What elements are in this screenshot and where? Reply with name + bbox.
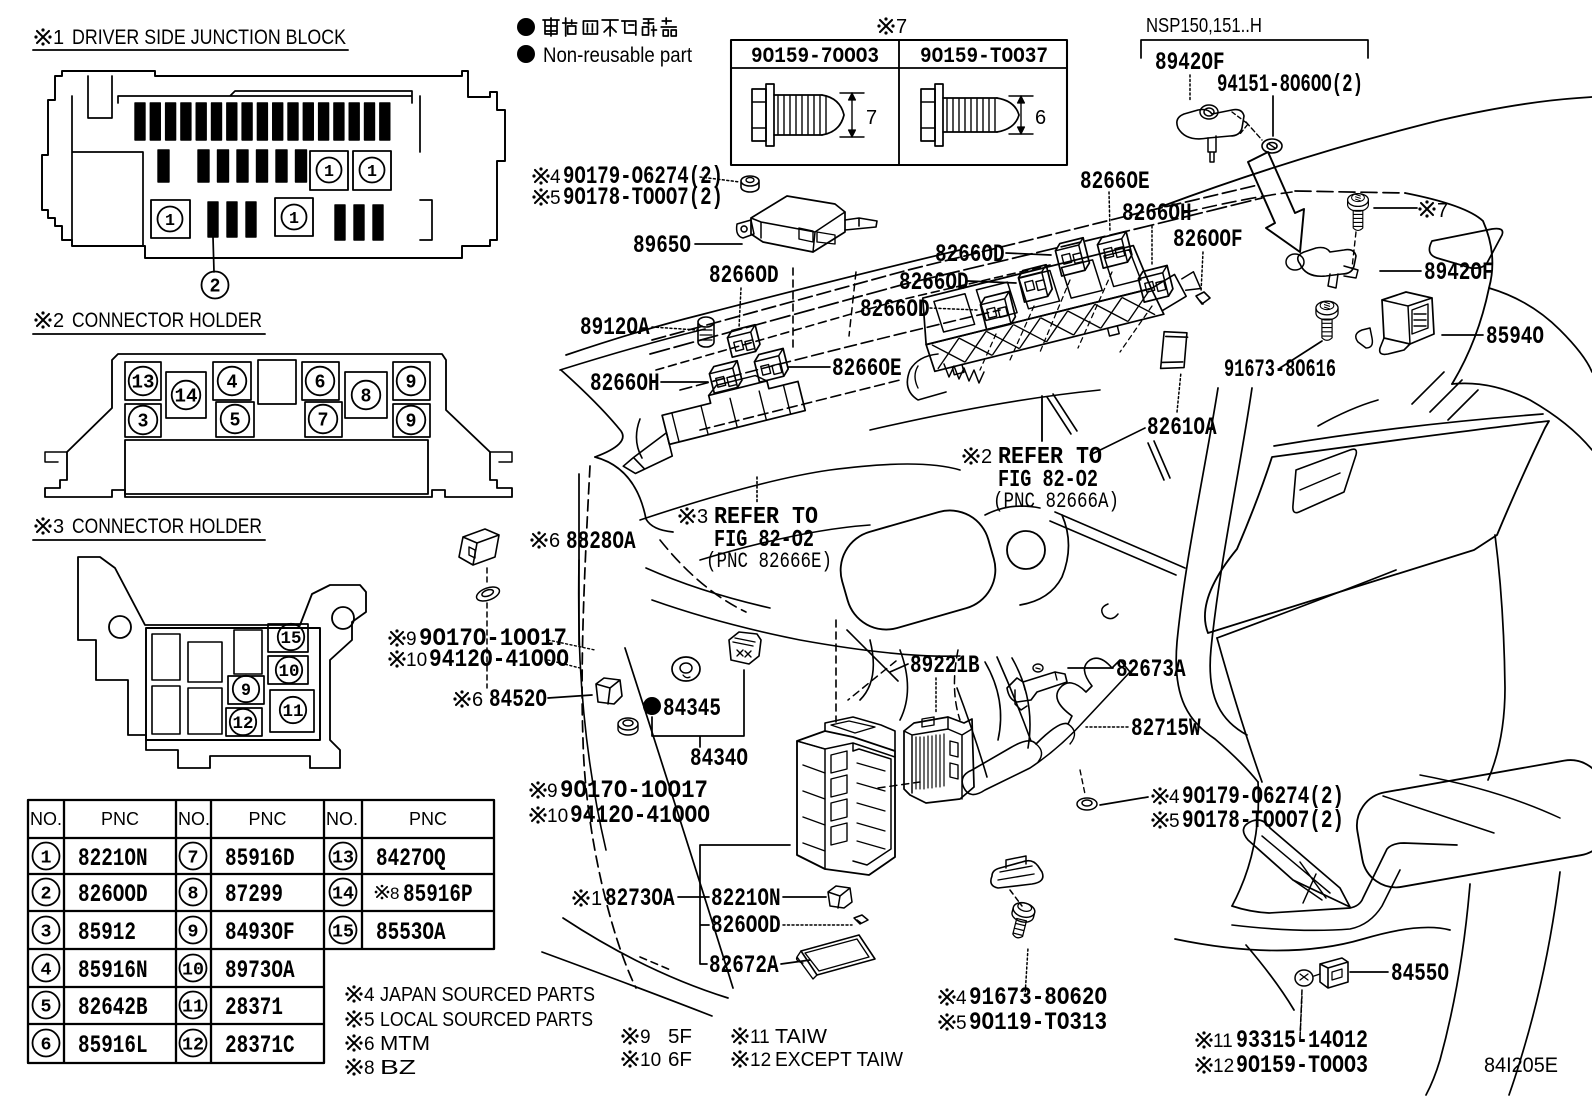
svg-text:9412O-41OOO: 9412O-41OOO: [570, 801, 710, 830]
svg-text:4: 4: [550, 167, 561, 188]
svg-text:82672A: 82672A: [709, 951, 779, 980]
svg-text:9O159-7OOO3: 9O159-7OOO3: [751, 44, 879, 69]
svg-text:8266OH: 8266OH: [590, 369, 660, 398]
svg-text:1: 1: [165, 212, 175, 231]
svg-text:8266OE: 8266OE: [832, 354, 902, 383]
svg-text:8266OD: 8266OD: [899, 268, 969, 297]
svg-text:8828OA: 8828OA: [566, 527, 636, 556]
svg-text:9O119-TO313: 9O119-TO313: [969, 1008, 1107, 1037]
svg-text:1: 1: [324, 163, 334, 182]
svg-text:91673-8O616: 91673-8O616: [1224, 355, 1336, 384]
svg-text:12: 12: [182, 1035, 204, 1055]
svg-text:8261OA: 8261OA: [1147, 413, 1217, 442]
svg-text:10: 10: [182, 960, 204, 980]
svg-text:7: 7: [188, 848, 199, 868]
svg-text:8266OE: 8266OE: [1080, 167, 1150, 196]
svg-text:84345: 84345: [663, 694, 721, 723]
svg-text:4: 4: [1169, 787, 1180, 808]
svg-text:28371C: 28371C: [225, 1031, 295, 1060]
svg-text:826OOD: 826OOD: [711, 911, 781, 940]
svg-text:Non-reusable part: Non-reusable part: [543, 44, 692, 67]
svg-text:1: 1: [53, 27, 64, 49]
svg-text:8221ON: 8221ON: [78, 844, 148, 873]
svg-text:NSP150,151..H: NSP150,151..H: [1146, 15, 1262, 37]
svg-text:8973OA: 8973OA: [225, 956, 295, 985]
svg-text:8942OF: 8942OF: [1424, 258, 1494, 287]
svg-text:12: 12: [1213, 1056, 1234, 1077]
svg-text:8266OD: 8266OD: [935, 240, 1005, 269]
svg-text:12: 12: [750, 1050, 771, 1071]
svg-text:4: 4: [41, 960, 52, 980]
svg-text:8452O: 8452O: [489, 685, 547, 714]
svg-text:8266OH: 8266OH: [1122, 199, 1192, 228]
svg-text:8553OA: 8553OA: [376, 918, 446, 947]
svg-text:5: 5: [230, 410, 241, 432]
svg-text:10: 10: [279, 662, 300, 682]
svg-text:3: 3: [138, 411, 149, 433]
svg-text:6: 6: [41, 1035, 52, 1055]
svg-text:3: 3: [41, 922, 52, 942]
svg-text:9: 9: [188, 922, 199, 942]
svg-text:10: 10: [640, 1050, 661, 1071]
svg-text:MTM: MTM: [380, 1033, 430, 1055]
svg-text:6: 6: [549, 530, 560, 552]
svg-text:9412O-41OOO: 9412O-41OOO: [429, 645, 569, 674]
svg-text:8594O: 8594O: [1486, 322, 1544, 351]
svg-text:6: 6: [315, 372, 326, 394]
svg-text:6: 6: [364, 1034, 375, 1055]
svg-text:15: 15: [281, 629, 302, 649]
svg-text:NO.: NO.: [178, 809, 210, 829]
svg-text:2: 2: [210, 276, 221, 298]
svg-text:CONNECTOR HOLDER: CONNECTOR HOLDER: [72, 309, 262, 332]
svg-text:7: 7: [896, 16, 907, 38]
svg-text:PNC: PNC: [101, 809, 139, 829]
svg-text:89221B: 89221B: [910, 651, 980, 680]
svg-text:28371: 28371: [225, 993, 283, 1022]
svg-text:(PNC 82666A): (PNC 82666A): [993, 489, 1119, 514]
svg-text:1: 1: [367, 163, 377, 182]
svg-text:8273OA: 8273OA: [605, 884, 675, 913]
svg-text:NO.: NO.: [30, 809, 62, 829]
svg-text:NO.: NO.: [326, 809, 358, 829]
svg-text:5: 5: [1169, 811, 1180, 832]
svg-text:2: 2: [41, 884, 52, 904]
svg-text:(PNC 82666E): (PNC 82666E): [706, 549, 832, 574]
svg-text:8912OA: 8912OA: [580, 313, 650, 342]
svg-text:9O159-TOO37: 9O159-TOO37: [920, 44, 1048, 69]
svg-text:8: 8: [390, 884, 399, 903]
svg-text:TAIW: TAIW: [775, 1026, 827, 1048]
svg-text:87299: 87299: [225, 880, 283, 909]
svg-text:6: 6: [472, 689, 483, 711]
svg-text:9: 9: [406, 629, 417, 650]
svg-text:8266OD: 8266OD: [860, 295, 930, 324]
svg-text:DRIVER SIDE JUNCTION BLOCK: DRIVER SIDE JUNCTION BLOCK: [72, 26, 346, 49]
svg-text:8: 8: [188, 884, 199, 904]
svg-text:3: 3: [53, 516, 64, 538]
svg-text:8493OF: 8493OF: [225, 918, 295, 947]
svg-text:8427OQ: 8427OQ: [376, 844, 446, 873]
svg-text:7: 7: [1437, 200, 1448, 222]
svg-text:8221ON: 8221ON: [711, 884, 781, 913]
svg-text:1: 1: [591, 888, 602, 910]
svg-text:1: 1: [289, 210, 299, 229]
svg-text:85916L: 85916L: [78, 1031, 148, 1060]
svg-text:11: 11: [1213, 1031, 1233, 1052]
svg-text:82673A: 82673A: [1116, 655, 1186, 684]
svg-text:13: 13: [132, 372, 155, 394]
svg-text:8455O: 8455O: [1391, 959, 1449, 988]
svg-text:85912: 85912: [78, 918, 136, 947]
svg-text:82642B: 82642B: [78, 993, 148, 1022]
svg-text:8965O: 8965O: [633, 231, 691, 260]
svg-text:4: 4: [364, 985, 375, 1006]
svg-text:9: 9: [406, 411, 417, 433]
svg-text:9: 9: [406, 372, 417, 394]
svg-text:5: 5: [550, 188, 561, 209]
svg-text:9O159-TOOO3: 9O159-TOOO3: [1236, 1051, 1368, 1080]
svg-text:11: 11: [750, 1027, 770, 1048]
svg-text:85916D: 85916D: [225, 844, 295, 873]
svg-text:6: 6: [1035, 107, 1046, 129]
svg-text:CONNECTOR HOLDER: CONNECTOR HOLDER: [72, 515, 262, 538]
svg-text:EXCEPT TAIW: EXCEPT TAIW: [775, 1049, 903, 1071]
svg-text:10: 10: [547, 806, 568, 827]
svg-text:14: 14: [175, 386, 198, 408]
svg-text:14: 14: [332, 884, 354, 904]
svg-text:13: 13: [332, 848, 354, 868]
svg-text:4: 4: [956, 988, 967, 1009]
svg-text:9: 9: [640, 1027, 651, 1048]
svg-text:2: 2: [981, 446, 992, 468]
svg-text:826OOD: 826OOD: [78, 880, 148, 909]
svg-text:82715W: 82715W: [1131, 714, 1201, 743]
svg-text:826OOF: 826OOF: [1173, 225, 1243, 254]
svg-text:11: 11: [283, 702, 304, 722]
svg-text:BZ: BZ: [380, 1057, 416, 1079]
svg-text:94151-8O6OO(2): 94151-8O6OO(2): [1217, 70, 1363, 99]
svg-text:9O178-TOOO7(2): 9O178-TOOO7(2): [563, 183, 723, 212]
svg-text:85916P: 85916P: [403, 880, 473, 909]
svg-text:10: 10: [406, 650, 427, 671]
svg-text:PNC: PNC: [409, 809, 447, 829]
svg-text:7: 7: [318, 410, 329, 432]
svg-text:8942OF: 8942OF: [1155, 48, 1225, 77]
svg-text:5F: 5F: [668, 1026, 692, 1048]
svg-text:1: 1: [41, 848, 52, 868]
svg-text:5: 5: [364, 1010, 375, 1031]
svg-text:PNC: PNC: [249, 809, 287, 829]
svg-text:8: 8: [364, 1058, 375, 1079]
svg-text:5: 5: [41, 997, 52, 1017]
svg-text:4: 4: [227, 372, 238, 394]
svg-text:15: 15: [332, 922, 354, 942]
svg-text:12: 12: [233, 714, 254, 734]
svg-text:9O178-TOOO7(2): 9O178-TOOO7(2): [1182, 806, 1344, 835]
svg-text:LOCAL SOURCED PARTS: LOCAL SOURCED PARTS: [380, 1009, 593, 1031]
svg-text:7: 7: [866, 107, 877, 129]
svg-text:85916N: 85916N: [78, 956, 148, 985]
svg-text:9: 9: [241, 681, 251, 701]
svg-text:3: 3: [697, 506, 708, 528]
svg-text:8266OD: 8266OD: [709, 261, 779, 290]
svg-text:11: 11: [182, 997, 204, 1017]
svg-text:6F: 6F: [668, 1049, 692, 1071]
svg-text:5: 5: [956, 1013, 967, 1034]
svg-text:JAPAN SOURCED PARTS: JAPAN SOURCED PARTS: [380, 984, 595, 1006]
svg-text:8434O: 8434O: [690, 744, 748, 773]
svg-text:8: 8: [361, 386, 372, 408]
svg-text:9: 9: [547, 781, 558, 802]
svg-text:2: 2: [53, 310, 64, 332]
